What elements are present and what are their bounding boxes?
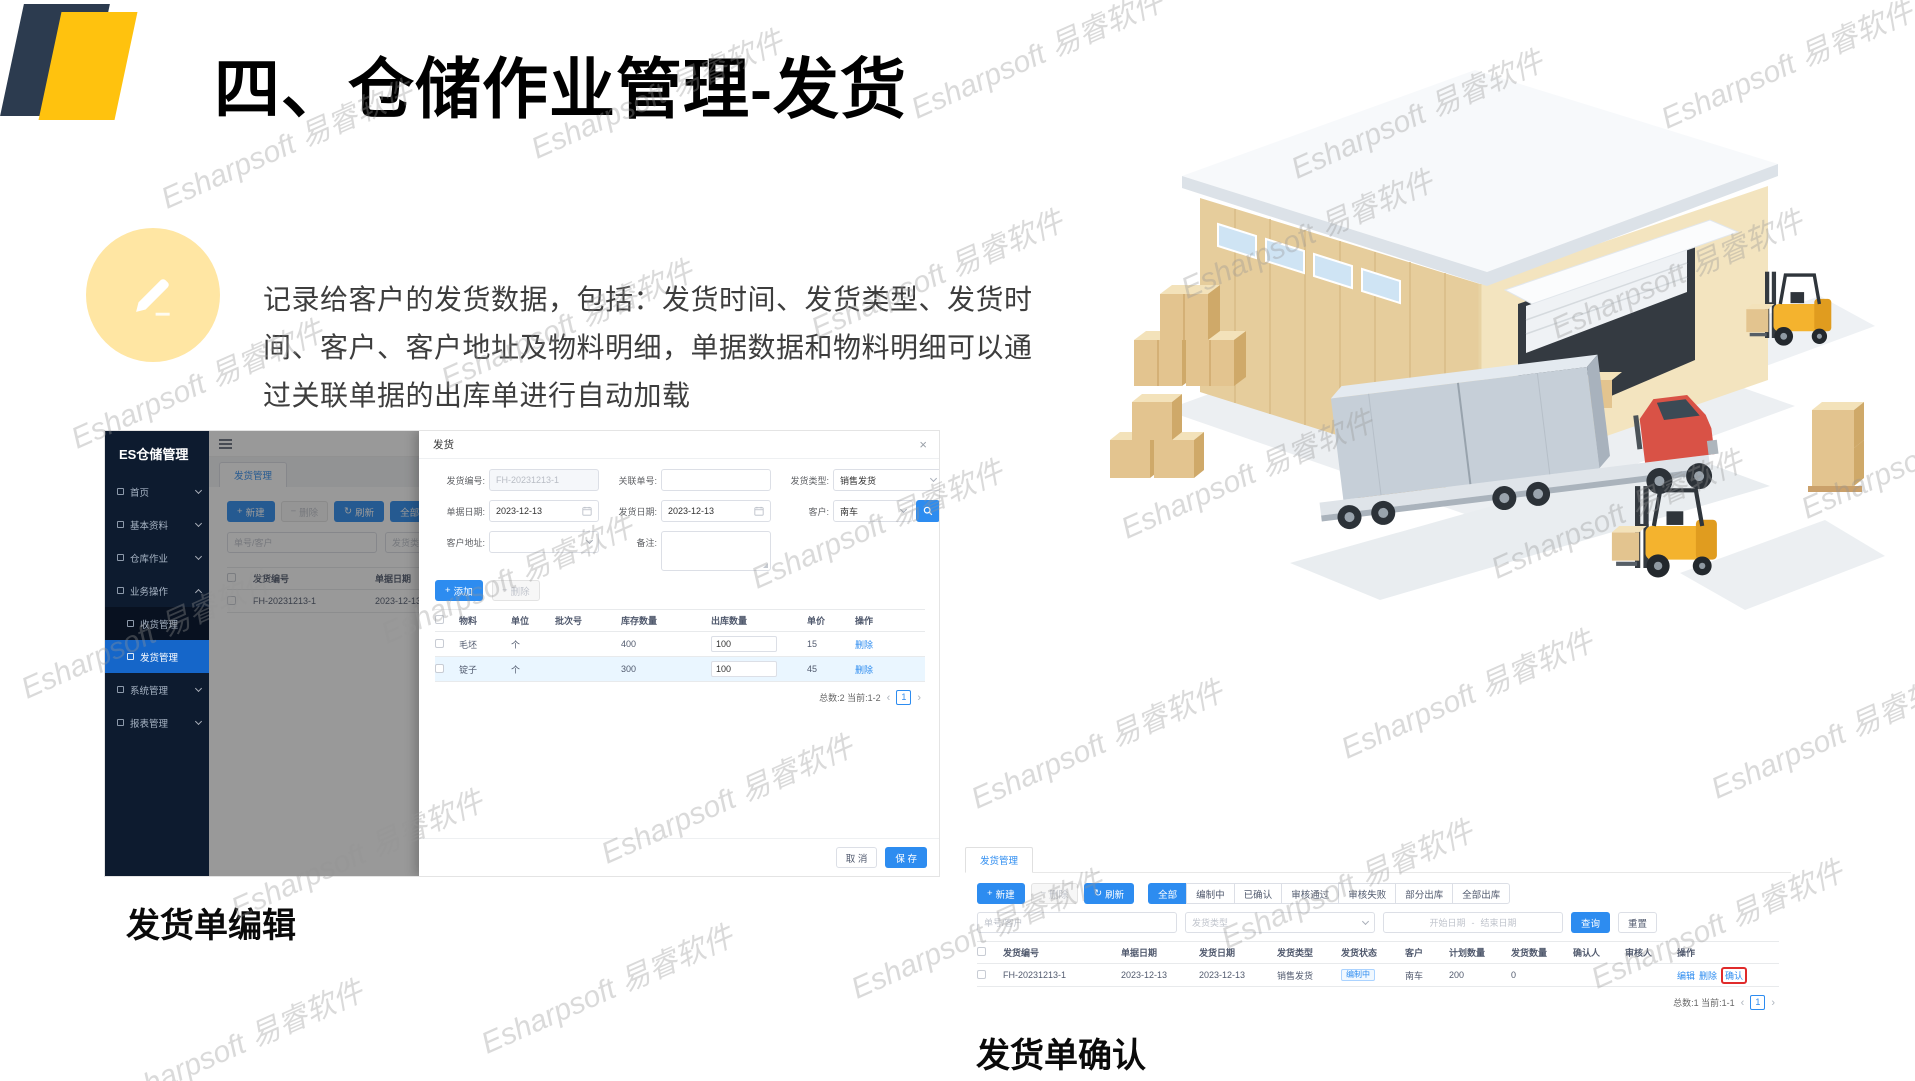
filter-drafting[interactable]: 编制中 <box>1186 883 1235 904</box>
item-toolbar: +添加 −删除 <box>435 580 925 601</box>
caption-edit: 发货单编辑 <box>126 898 296 947</box>
status-filter-group: 全部 编制中 已确认 审核通过 审核失败 部分出库 全部出库 <box>1148 883 1510 904</box>
reset-button[interactable]: 重置 <box>1618 912 1657 933</box>
filter-bar: 发货类型 开始日期 - 结束日期 查询 重置 <box>977 912 1791 933</box>
drawer-header: 发货 × <box>419 431 939 459</box>
chevron-down-icon <box>195 486 202 493</box>
confirm-annotation-box: 确认 <box>1721 967 1747 984</box>
folder-icon <box>117 521 124 528</box>
drawer-body: 发货编号: FH-20231213-1 关联单号: 发货类型: 销售发货 单据日… <box>419 459 939 705</box>
chevron-down-icon <box>1362 917 1369 924</box>
filter-confirmed[interactable]: 已确认 <box>1234 883 1283 904</box>
next-page-icon[interactable]: › <box>917 692 921 704</box>
table-row[interactable]: FH-20231213-1 2023-12-13 2023-12-13 销售发货… <box>977 964 1779 987</box>
date-range-picker[interactable]: 开始日期 - 结束日期 <box>1383 912 1563 933</box>
sidebar-item-warehouse-jobs[interactable]: 仓库作业 <box>105 541 209 574</box>
grid-icon <box>117 554 124 561</box>
related-order-field[interactable] <box>661 469 771 491</box>
drawer-pagination: 总数:2 当前:1-2 ‹ 1 › <box>435 690 925 705</box>
page-title: 四、仓储作业管理-发货 <box>214 36 907 132</box>
confirm-window: 发货管理 +新建 −删除 ↻刷新 全部 编制中 已确认 审核通过 审核失败 部分… <box>965 848 1791 1024</box>
edit-link[interactable]: 编辑 <box>1677 969 1695 982</box>
tab-bar: 发货管理 <box>965 848 1791 873</box>
refresh-button[interactable]: ↻刷新 <box>1084 883 1134 904</box>
ship-code-field[interactable]: FH-20231213-1 <box>489 469 599 491</box>
sidebar-item-reports[interactable]: 报表管理 <box>105 706 209 739</box>
receive-doc-icon <box>127 620 134 627</box>
select-all-checkbox[interactable] <box>435 615 444 624</box>
page-number[interactable]: 1 <box>1750 995 1765 1010</box>
chevron-up-icon <box>195 588 202 595</box>
sidebar-item-home[interactable]: 首页 <box>105 475 209 508</box>
chevron-down-icon <box>195 519 202 526</box>
filter-full-out[interactable]: 全部出库 <box>1452 883 1510 904</box>
customer-address-select[interactable] <box>489 531 599 553</box>
plus-icon: + <box>987 888 993 899</box>
sidebar-item-basic-data[interactable]: 基本资料 <box>105 508 209 541</box>
home-icon <box>117 488 124 495</box>
caption-confirm: 发货单确认 <box>976 1028 1146 1077</box>
drawer-title: 发货 <box>433 437 454 452</box>
chevron-down-icon <box>195 684 202 691</box>
edit-window: ES仓储管理 首页 基本资料 仓库作业 业务操作 收货管理 <box>104 430 940 877</box>
add-item-button[interactable]: +添加 <box>435 580 483 601</box>
slide: 四、仓储作业管理-发货 记录给客户的发货数据，包括：发货时间、发货类型、发货时 … <box>0 0 1915 1081</box>
chevron-down-icon <box>195 552 202 559</box>
pagination-summary: 总数:1 当前:1-1 <box>1673 996 1735 1009</box>
page-number[interactable]: 1 <box>896 690 911 705</box>
watermark-text: Esharpsoft 易睿软件 <box>473 912 739 1063</box>
ship-type-select[interactable]: 销售发货 <box>833 469 939 491</box>
prev-page-icon[interactable]: ‹ <box>887 692 891 704</box>
watermark-text: Esharpsoft 易睿软件 <box>1703 657 1915 808</box>
description-line: 记录给客户的发货数据，包括：发货时间、发货类型、发货时 <box>263 276 1053 324</box>
tab-shipping-management[interactable]: 发货管理 <box>965 847 1033 873</box>
sidebar-item-business-ops[interactable]: 业务操作 <box>105 574 209 607</box>
item-table: 物料 单位 批次号 库存数量 出库数量 单价 操作 毛坯 个 <box>435 609 925 682</box>
delete-link[interactable]: 删除 <box>1699 969 1717 982</box>
refresh-icon: ↻ <box>1094 888 1102 899</box>
watermark-text: Esharpsoft 易睿软件 <box>103 967 369 1081</box>
remove-item-button[interactable]: −删除 <box>492 580 540 601</box>
report-icon <box>117 719 124 726</box>
filter-approved[interactable]: 审核通过 <box>1281 883 1339 904</box>
description-line: 间、客户、客户地址及物料明细，单据数据和物料明细可以通 <box>263 324 1053 372</box>
ship-doc-icon <box>127 653 134 660</box>
pen-icon <box>127 269 179 321</box>
calendar-icon <box>582 506 592 516</box>
row-checkbox[interactable] <box>435 639 444 648</box>
table-pagination: 总数:1 当前:1-1 ‹ 1 › <box>965 995 1775 1010</box>
box-stack-right <box>1808 402 1864 492</box>
delete-item-link[interactable]: 删除 <box>855 665 873 675</box>
main-area: 发货管理 +新建 −删除 ↻刷新 全部 编制中 发货类型 <box>209 431 939 876</box>
ship-date-field[interactable]: 2023-12-13 <box>661 500 771 522</box>
customer-search-button[interactable] <box>916 500 939 522</box>
customer-select[interactable]: 南车 <box>833 500 913 522</box>
edit-icon-circle <box>86 228 220 362</box>
shipping-table: 发货编号 单据日期 发货日期 发货类型 发货状态 客户 计划数量 发货数量 确认… <box>977 941 1779 987</box>
gear-icon <box>117 686 124 693</box>
out-qty-input[interactable] <box>711 661 777 677</box>
watermark-text: Esharpsoft 易睿软件 <box>963 667 1229 818</box>
close-icon[interactable]: × <box>919 438 927 451</box>
type-select[interactable]: 发货类型 <box>1185 912 1375 933</box>
minus-icon: − <box>1041 888 1047 899</box>
search-input[interactable] <box>977 912 1177 933</box>
cancel-button[interactable]: 取 消 <box>836 847 878 868</box>
next-page-icon[interactable]: › <box>1771 997 1775 1009</box>
remark-textarea[interactable] <box>661 531 771 571</box>
item-row[interactable]: 锭子 个 300 45 删除 <box>435 657 925 682</box>
drawer-footer: 取 消 保 存 <box>419 838 939 876</box>
filter-partial-out[interactable]: 部分出库 <box>1395 883 1453 904</box>
filter-all[interactable]: 全部 <box>1148 883 1187 904</box>
select-all-checkbox[interactable] <box>977 947 986 956</box>
pagination-summary: 总数:2 当前:1-2 <box>819 691 881 704</box>
toolbar: +新建 −删除 ↻刷新 全部 编制中 已确认 审核通过 审核失败 部分出库 全部… <box>977 883 1791 904</box>
chevron-down-icon <box>586 537 593 544</box>
table-header: 发货编号 单据日期 发货日期 发货类型 发货状态 客户 计划数量 发货数量 确认… <box>977 941 1779 964</box>
plus-icon: + <box>445 585 451 596</box>
search-button[interactable]: 查询 <box>1571 912 1610 933</box>
description: 记录给客户的发货数据，包括：发货时间、发货类型、发货时 间、客户、客户地址及物料… <box>263 276 1053 420</box>
prev-page-icon[interactable]: ‹ <box>1741 997 1745 1009</box>
description-line: 过关联单据的出库单进行自动加载 <box>263 372 1053 420</box>
item-row[interactable]: 毛坯 个 400 15 删除 <box>435 632 925 657</box>
app-title: ES仓储管理 <box>105 431 209 475</box>
shipping-drawer: 发货 × 发货编号: FH-20231213-1 关联单号: 发货类型: 销售发… <box>419 431 939 876</box>
save-button[interactable]: 保 存 <box>885 847 927 868</box>
chevron-down-icon <box>930 475 937 482</box>
search-icon <box>923 506 933 516</box>
minus-icon: − <box>502 585 508 596</box>
search-input-field[interactable] <box>984 918 1170 928</box>
chevron-down-icon <box>900 506 907 513</box>
sidebar-item-shipping[interactable]: 发货管理 <box>105 640 209 673</box>
new-button[interactable]: +新建 <box>977 883 1025 904</box>
row-checkbox[interactable] <box>977 970 986 979</box>
sidebar-item-system[interactable]: 系统管理 <box>105 673 209 706</box>
item-table-header: 物料 单位 批次号 库存数量 出库数量 单价 操作 <box>435 610 925 632</box>
chevron-down-icon <box>195 717 202 724</box>
filter-rejected[interactable]: 审核失败 <box>1338 883 1396 904</box>
doc-date-field[interactable]: 2023-12-13 <box>489 500 599 522</box>
status-badge: 编制中 <box>1341 969 1375 981</box>
sidebar: ES仓储管理 首页 基本资料 仓库作业 业务操作 收货管理 <box>105 431 209 876</box>
sidebar-item-receiving[interactable]: 收货管理 <box>105 607 209 640</box>
out-qty-input[interactable] <box>711 636 777 652</box>
confirm-link[interactable]: 确认 <box>1725 971 1743 981</box>
warehouse-illustration <box>1050 8 1895 648</box>
delete-item-link[interactable]: 删除 <box>855 640 873 650</box>
operations-icon <box>117 587 124 594</box>
row-checkbox[interactable] <box>435 664 444 673</box>
delete-button[interactable]: −删除 <box>1031 883 1079 904</box>
calendar-icon <box>754 506 764 516</box>
